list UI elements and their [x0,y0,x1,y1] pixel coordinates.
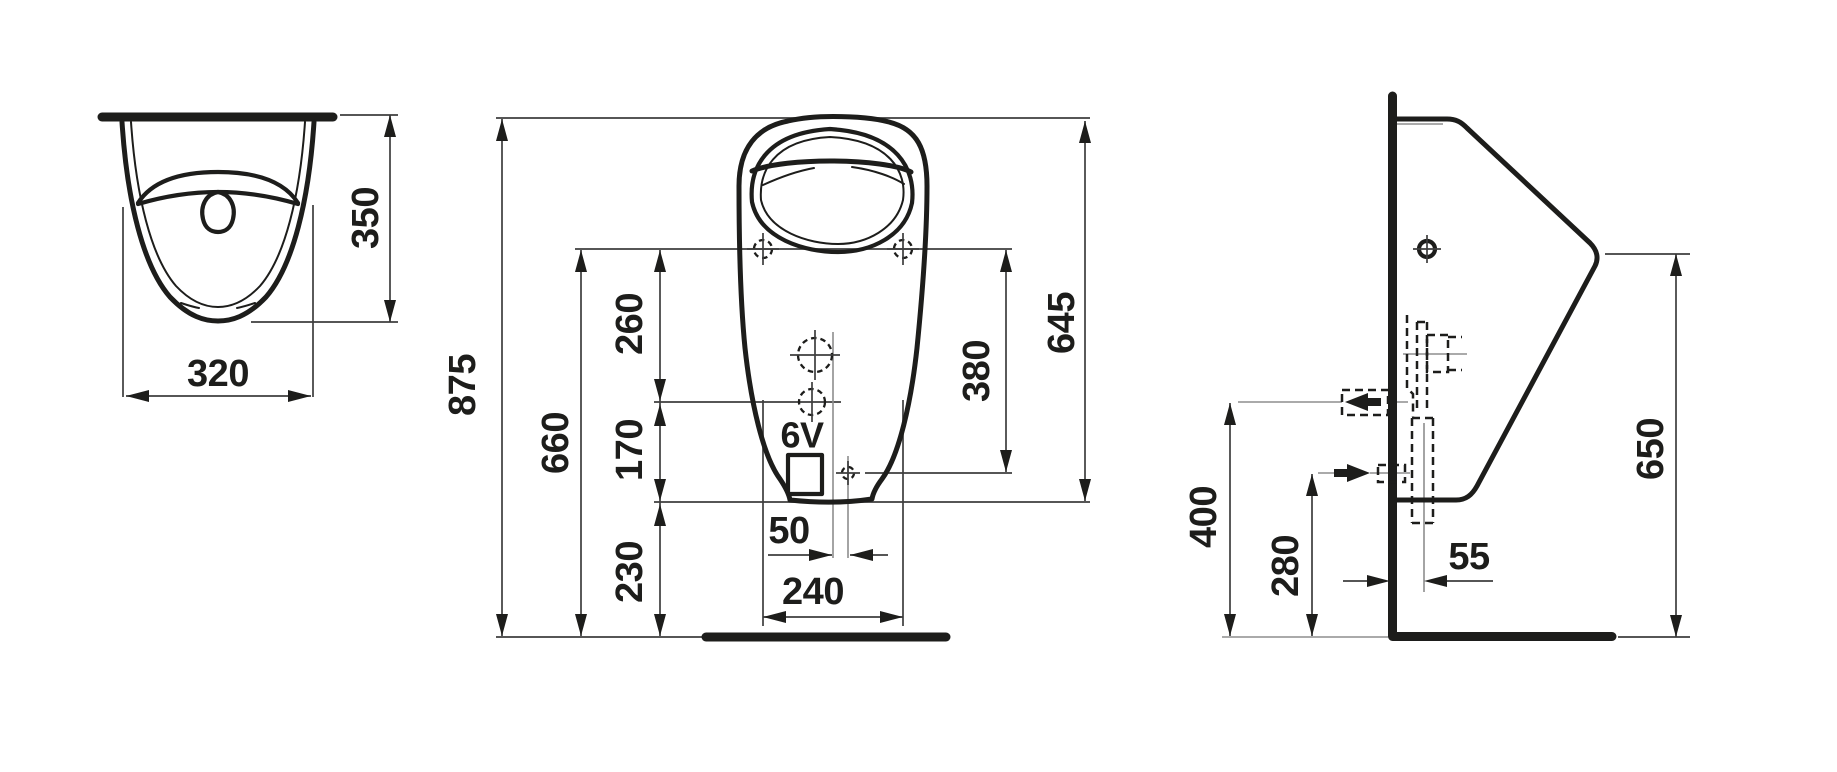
bowl-outer-outline [122,122,314,321]
front-view: 6V 875 660 260 170 230 380 645 50 240 [442,117,1091,638]
bowl-back-edge [752,161,911,172]
dim-230: 230 [609,541,651,603]
drain-opening [202,192,234,232]
front-view-extension-lines [496,118,1090,637]
urinal-dimension-drawing: 350 320 [0,0,1837,772]
battery-label: 6V [780,415,824,456]
dim-260: 260 [609,293,651,355]
outlet-hole [836,461,860,485]
urinal-profile-outline [1397,119,1597,500]
wall-and-floor-line [1393,96,1613,637]
rim-inner-edge [761,137,904,244]
dim-875: 875 [442,354,484,416]
front-view-dimension-lines [496,119,1091,636]
dim-55: 55 [1448,536,1490,578]
dim-280: 280 [1265,535,1307,597]
top-view-dimension-lines [123,115,398,402]
outlet-flow-arrow [1334,464,1370,482]
dim-50: 50 [768,510,809,552]
side-view: 400 280 650 55 [1183,96,1690,637]
dim-400: 400 [1183,486,1225,548]
dim-350: 350 [345,187,387,249]
dim-650: 650 [1630,418,1672,480]
technical-drawing-canvas: 350 320 [0,0,1837,772]
dim-380: 380 [956,340,998,402]
water-inlet-arrow [1345,393,1381,411]
mounting-hole-side [1413,235,1441,263]
dim-320: 320 [187,353,249,395]
dim-660: 660 [535,412,577,474]
battery-box [788,455,822,494]
top-view: 350 320 [102,115,398,402]
rim-outer-edge [752,129,913,252]
dim-170: 170 [609,419,651,481]
dim-645: 645 [1041,292,1083,354]
concealed-plumbing-dashed [1342,315,1462,523]
dim-240: 240 [782,571,844,613]
bowl-contour-lines [763,167,904,185]
